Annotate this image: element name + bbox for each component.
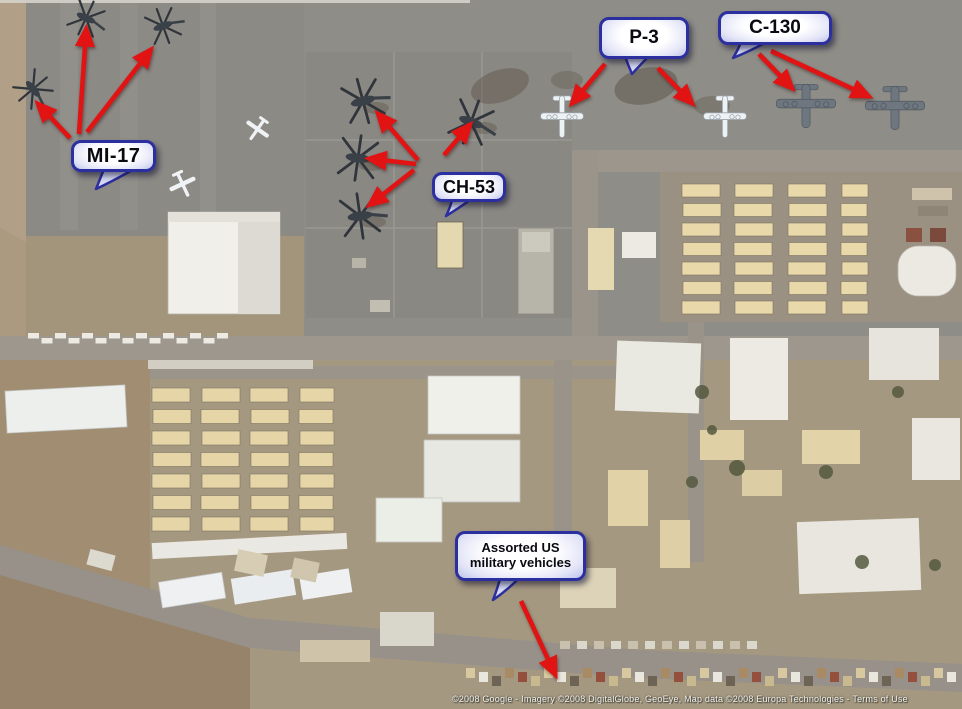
barracks-building <box>789 204 827 217</box>
vehicle <box>765 676 774 686</box>
barracks-building <box>152 431 190 445</box>
truck <box>217 333 228 339</box>
vehicle <box>518 672 527 682</box>
vehicle <box>713 672 722 682</box>
barracks-building <box>152 474 190 488</box>
vehicle <box>577 641 587 649</box>
barracks-building <box>152 388 190 402</box>
vehicle <box>696 641 706 649</box>
vehicle <box>726 676 735 686</box>
callout-vehicles-label-line2: military vehicles <box>470 556 571 571</box>
barracks-building <box>842 223 868 236</box>
truck <box>150 338 161 344</box>
map-attribution: ©2008 Google - Imagery ©2008 DigitalGlob… <box>452 694 962 704</box>
barracks-building <box>153 453 191 467</box>
barracks-building <box>682 301 720 314</box>
barracks-building <box>682 262 720 275</box>
barracks-building <box>300 388 334 402</box>
vehicle <box>679 641 689 649</box>
barracks-building <box>789 282 827 295</box>
barracks-building <box>299 453 333 467</box>
vehicle <box>635 672 644 682</box>
vehicle <box>947 672 956 682</box>
vehicle <box>752 672 761 682</box>
barracks-building <box>842 184 868 197</box>
barracks-building <box>300 517 334 531</box>
truck <box>109 333 120 339</box>
vehicle <box>609 676 618 686</box>
callout-ch53: CH-53 <box>432 172 506 202</box>
barracks-building <box>251 453 289 467</box>
vehicle <box>596 672 605 682</box>
vehicle <box>479 672 488 682</box>
barracks-building <box>201 410 239 424</box>
vehicle <box>662 641 672 649</box>
vehicle <box>830 672 839 682</box>
barracks-building <box>789 243 827 256</box>
vehicle <box>492 676 501 686</box>
barracks-building <box>201 453 239 467</box>
vehicle <box>648 676 657 686</box>
barracks-building <box>735 262 773 275</box>
barracks-building <box>251 410 289 424</box>
barracks-building <box>299 496 333 510</box>
vehicle <box>869 672 878 682</box>
truck <box>42 338 53 344</box>
barracks-building <box>735 301 773 314</box>
barracks-building <box>202 474 240 488</box>
vehicle <box>505 668 514 678</box>
barracks-building <box>300 431 334 445</box>
vehicle <box>560 641 570 649</box>
barracks-building <box>682 223 720 236</box>
truck <box>163 333 174 339</box>
barracks-building <box>250 474 288 488</box>
vehicle <box>531 676 540 686</box>
truck <box>69 338 80 344</box>
truck <box>28 333 39 339</box>
callout-ch53-label: CH-53 <box>443 177 495 198</box>
barracks-building <box>300 474 334 488</box>
barracks-building <box>201 496 239 510</box>
vehicle <box>713 641 723 649</box>
barracks-building <box>682 184 720 197</box>
barracks-building <box>734 243 772 256</box>
vehicle <box>557 672 566 682</box>
callout-p3: P-3 <box>599 17 689 59</box>
vehicle <box>778 668 787 678</box>
barracks-building <box>734 204 772 217</box>
vehicle <box>594 641 604 649</box>
barracks-building <box>683 204 721 217</box>
barracks-building <box>735 184 773 197</box>
truck <box>96 338 107 344</box>
barracks-building <box>202 431 240 445</box>
barracks-building <box>841 243 867 256</box>
vehicle <box>570 676 579 686</box>
vehicle <box>817 668 826 678</box>
truck <box>204 338 215 344</box>
barracks-building <box>735 223 773 236</box>
vehicle <box>730 641 740 649</box>
vehicle <box>687 676 696 686</box>
barracks-building <box>788 301 826 314</box>
callout-mi17: MI-17 <box>71 140 156 172</box>
vehicle <box>466 668 475 678</box>
vehicle <box>611 641 621 649</box>
barracks-building <box>250 517 288 531</box>
barracks-building <box>841 282 867 295</box>
vehicle <box>882 676 891 686</box>
barracks-building <box>152 517 190 531</box>
barracks-building <box>202 388 240 402</box>
callout-c130-label: C-130 <box>749 17 801 39</box>
barracks-building <box>202 517 240 531</box>
vehicle <box>739 668 748 678</box>
barracks-building <box>734 282 772 295</box>
barracks-building <box>250 431 288 445</box>
barracks-building <box>250 388 288 402</box>
vehicle <box>921 676 930 686</box>
annotated-satellite-image: MI-17 CH-53 P-3 C-130 Assorted US milita… <box>0 0 962 709</box>
barracks-building <box>153 496 191 510</box>
vehicle <box>700 668 709 678</box>
callout-c130: C-130 <box>718 11 832 45</box>
callout-vehicles-label-line1: Assorted US <box>481 541 559 556</box>
vehicle <box>843 676 852 686</box>
airfield-scene <box>0 0 962 709</box>
vehicle <box>622 668 631 678</box>
callout-vehicles: Assorted US military vehicles <box>455 531 586 581</box>
barracks-building <box>683 243 721 256</box>
vehicle <box>674 672 683 682</box>
vehicle <box>791 672 800 682</box>
vehicle <box>934 668 943 678</box>
callout-p3-label: P-3 <box>629 27 659 49</box>
barracks-building <box>841 204 867 217</box>
vehicle <box>908 672 917 682</box>
truck <box>123 338 134 344</box>
truck <box>82 333 93 339</box>
barracks-building <box>788 262 826 275</box>
truck <box>190 333 201 339</box>
vehicle <box>856 668 865 678</box>
barracks-building <box>788 223 826 236</box>
truck <box>177 338 188 344</box>
vehicle <box>895 668 904 678</box>
truck <box>136 333 147 339</box>
truck <box>55 333 66 339</box>
barracks-building <box>842 262 868 275</box>
vehicle <box>804 676 813 686</box>
callout-mi17-label: MI-17 <box>87 145 141 168</box>
vehicle <box>645 641 655 649</box>
vehicle <box>747 641 757 649</box>
barracks-building <box>251 496 289 510</box>
barracks-building <box>683 282 721 295</box>
vehicle <box>661 668 670 678</box>
barracks-building <box>788 184 826 197</box>
barracks-building <box>153 410 191 424</box>
barracks-building <box>299 410 333 424</box>
vehicle <box>628 641 638 649</box>
barracks-building <box>842 301 868 314</box>
vehicle <box>583 668 592 678</box>
